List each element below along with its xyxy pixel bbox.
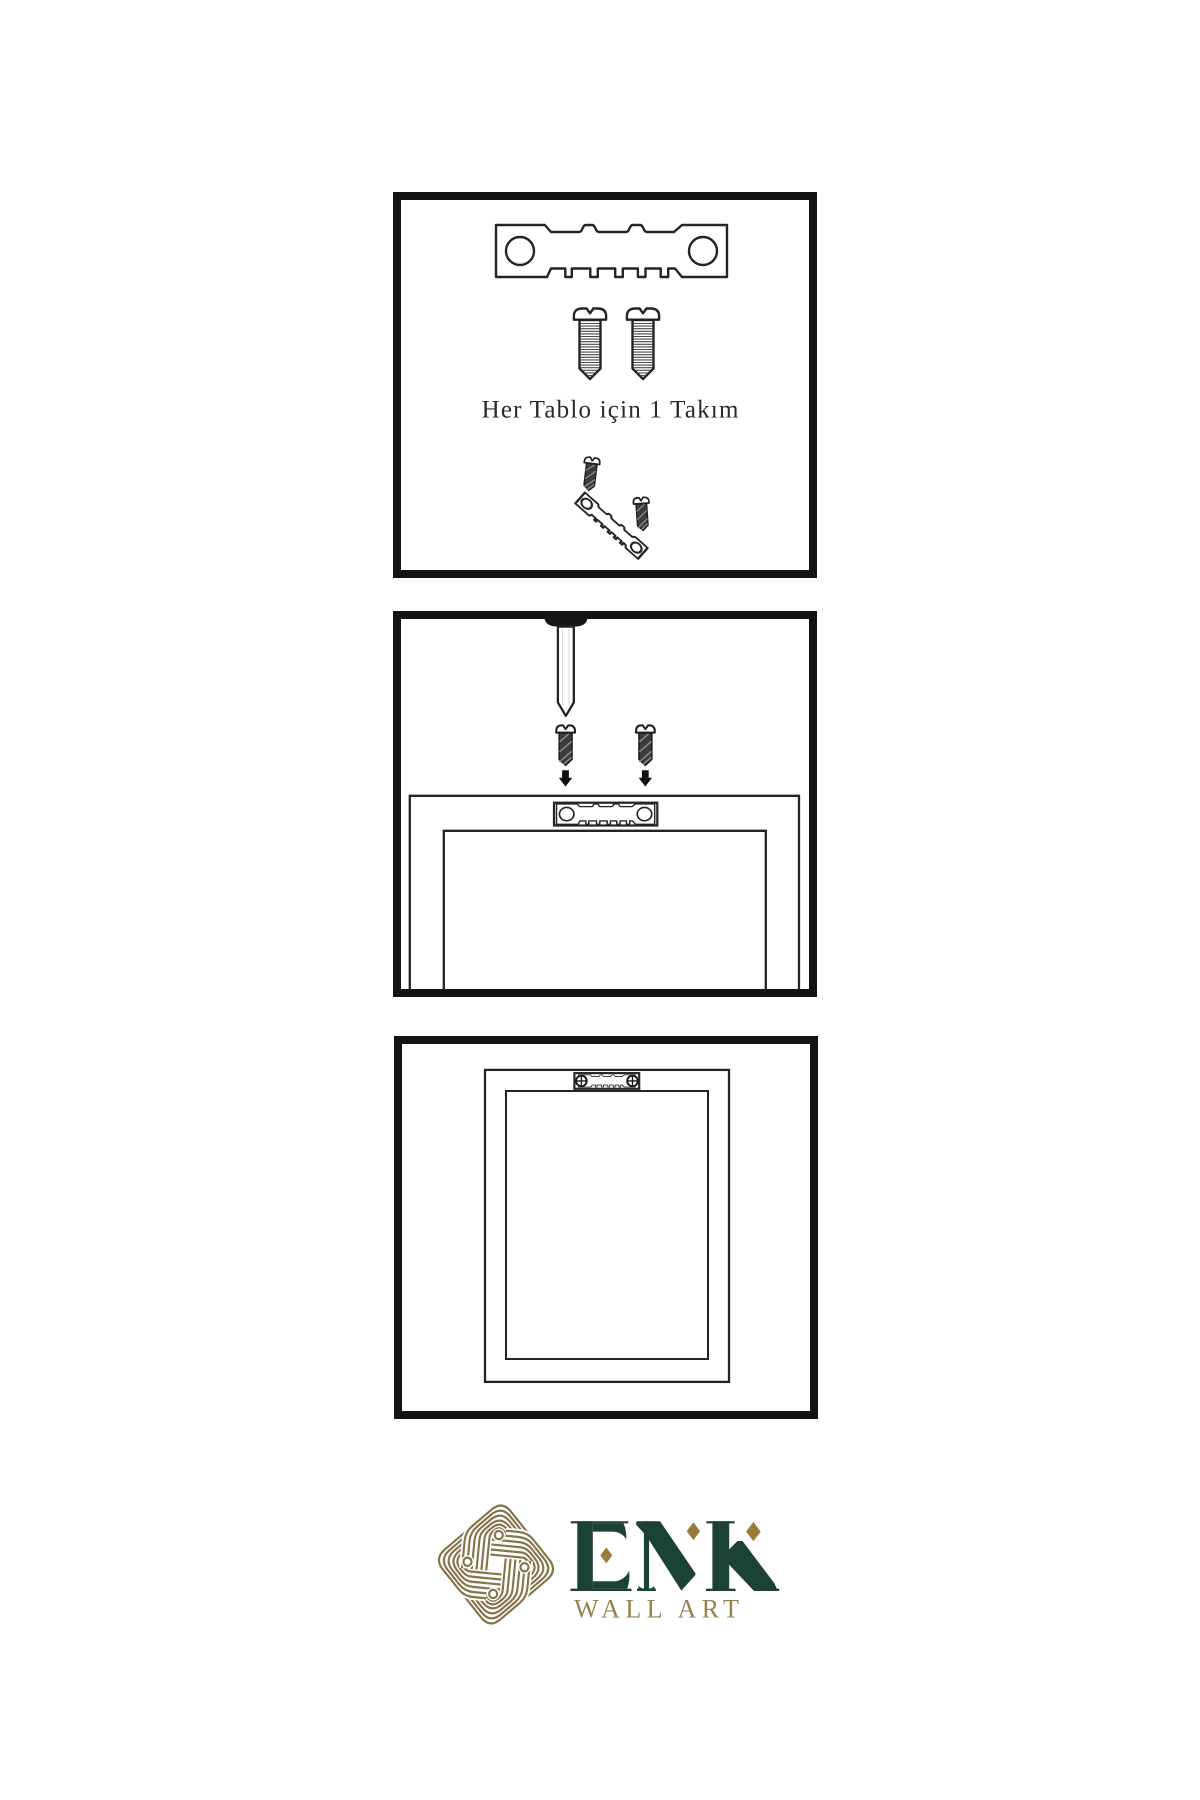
svg-text:Her Tablo için 1 Takım: Her Tablo için 1 Takım (482, 397, 740, 424)
svg-text:WALL ART: WALL ART (574, 1595, 744, 1624)
